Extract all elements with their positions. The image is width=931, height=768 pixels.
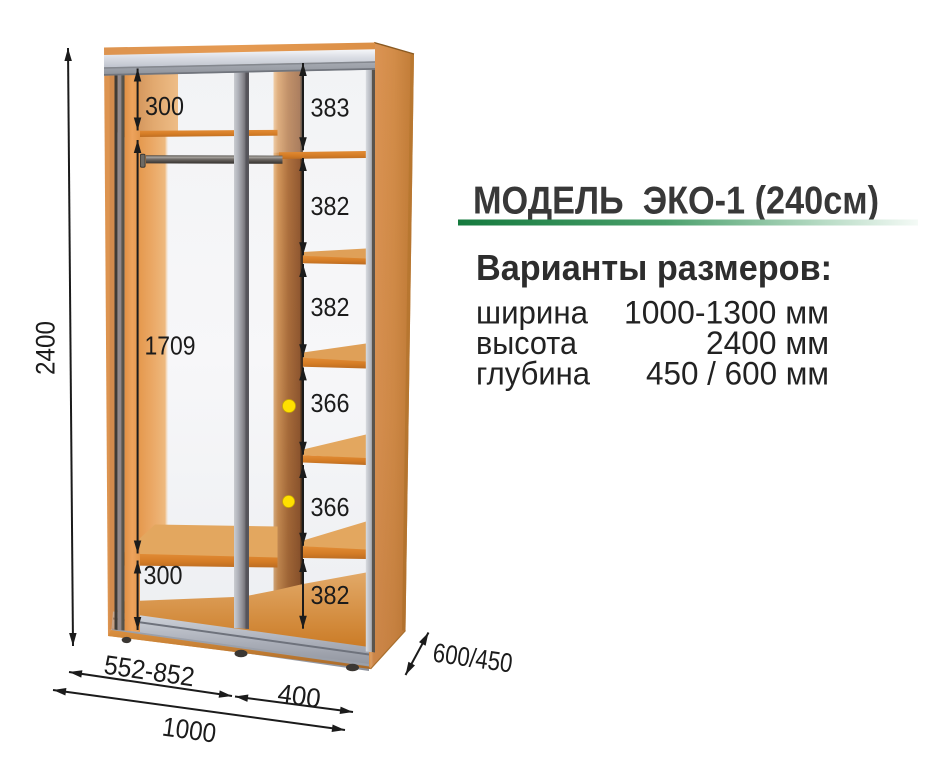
svg-text:глубина: глубина	[476, 356, 590, 392]
svg-text:450 / 600 мм: 450 / 600 мм	[646, 356, 829, 392]
svg-text:382: 382	[311, 191, 350, 221]
svg-text:552-852: 552-852	[102, 650, 196, 693]
svg-text:2400: 2400	[31, 321, 61, 375]
svg-text:300: 300	[145, 91, 184, 121]
svg-text:МОДЕЛЬ ЭКО-1 (240см): МОДЕЛЬ ЭКО-1 (240см)	[473, 180, 879, 223]
svg-text:383: 383	[311, 92, 350, 122]
svg-text:382: 382	[311, 580, 350, 610]
svg-text:366: 366	[311, 492, 350, 522]
svg-text:366: 366	[311, 388, 350, 418]
svg-text:400: 400	[276, 678, 323, 713]
svg-text:1709: 1709	[145, 331, 196, 361]
svg-text:Варианты размеров:: Варианты размеров:	[476, 247, 832, 288]
svg-text:300: 300	[144, 560, 183, 590]
svg-text:1000: 1000	[160, 712, 218, 749]
svg-text:600/450: 600/450	[431, 638, 514, 679]
svg-text:382: 382	[311, 292, 350, 322]
